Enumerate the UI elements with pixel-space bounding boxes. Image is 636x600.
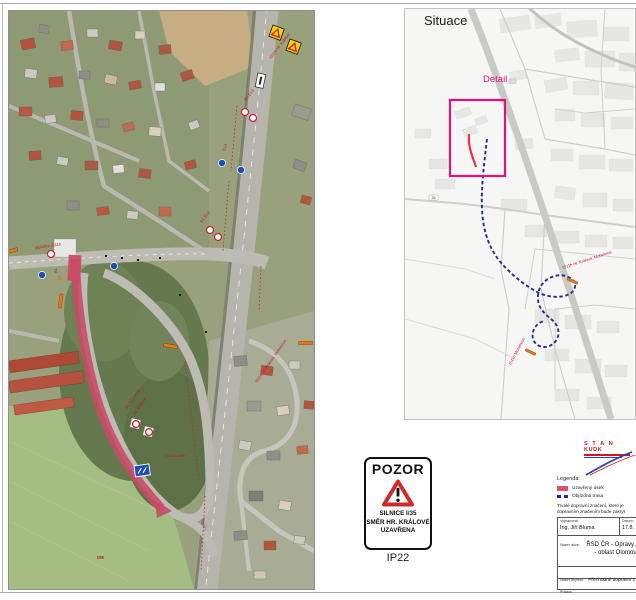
title-block: Vypracoval: Ing. Jiří Bluma Datum: 17.8.… <box>557 517 636 590</box>
title-block-attachment-cell: Příloha: IZb verze 8 <box>558 579 636 596</box>
pozor-closure-sign: POZOR SILNICE I/35 SMĚR HR. KRÁLOVÉ UZAV… <box>364 457 432 550</box>
legend-item-closed: Uzavřený úsek <box>557 484 636 492</box>
closed-section-swatch <box>557 486 568 491</box>
sheet-frame-bottom <box>0 592 636 593</box>
svg-text:B1: B1 <box>53 267 58 273</box>
legend-item-detour: Objízdná trasa <box>557 492 636 500</box>
author-name: Ing. Jiří Bluma <box>560 525 617 531</box>
sheet-frame-left <box>2 3 3 593</box>
sheet-frame-top <box>0 3 636 4</box>
pozor-line2: SMĚR HR. KRÁLOVÉ <box>366 519 430 527</box>
logo-flourish-icon <box>580 451 636 477</box>
title-block-date-cell: Datum: 17.8. <box>620 518 636 535</box>
date-value: 17.8. <box>622 525 636 531</box>
svg-text:0,120 d. 40m: 0,120 d. 40m <box>165 454 186 458</box>
cancel-x-mark: × <box>57 273 62 283</box>
legend: Legenda: Uzavřený úsek Objízdná trasa Tr… <box>557 476 636 516</box>
svg-text:35: 35 <box>432 196 436 200</box>
aerial-map-canvas: × IS11b Hr. Králové B1 E13 E13 B1 E13 ob… <box>9 11 314 589</box>
aerial-detail-map: × IS11b Hr. Králové B1 E13 E13 B1 E13 ob… <box>8 10 315 590</box>
legend-title: Legenda: <box>557 476 636 482</box>
title-block-object-cell: Název objektu: Přechodné dopravní z <box>558 567 636 579</box>
pozor-line1: SILNICE I/35 <box>366 510 430 518</box>
situation-map-canvas: 35 Situace Detail IS11b Hr. Králové, Moh… <box>405 9 635 419</box>
direction-table-sign-icon <box>134 464 150 477</box>
action-title-line2: - oblast Olomouc <box>558 550 636 558</box>
situation-title: Situace <box>424 13 467 28</box>
detour-route-swatch <box>557 495 568 498</box>
pozor-sign-code: IP22 <box>364 552 432 564</box>
title-block-action-cell: Název akce: ŘSD ČR - Opravy AHV - oblast… <box>558 542 636 567</box>
drawing-sheet: × IS11b Hr. Králové B1 E13 E13 B1 E13 ob… <box>0 0 636 600</box>
warning-triangle-icon <box>381 478 415 508</box>
pozor-line3: UZAVŘENA <box>366 527 430 535</box>
situation-overview-map: 35 Situace Detail IS11b Hr. Králové, Moh… <box>404 8 636 420</box>
company-logo: S T A N KUDK <box>584 441 636 475</box>
svg-text:IS8: IS8 <box>97 555 104 560</box>
title-block-author-cell: Vypracoval: Ing. Jiří Bluma <box>558 518 620 535</box>
pozor-title: POZOR <box>366 462 430 477</box>
road-number-label: I/35 <box>203 524 208 531</box>
detail-label: Detail <box>483 74 507 85</box>
legend-note: Trvalé dopravní značení, které je doprav… <box>557 503 636 516</box>
